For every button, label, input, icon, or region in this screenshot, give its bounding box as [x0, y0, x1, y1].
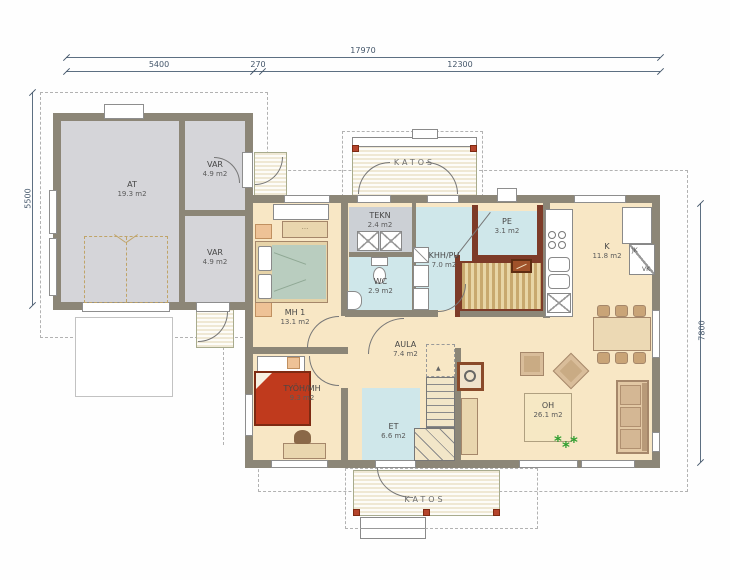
dimension-line-segments — [66, 71, 660, 72]
sofa-backrest — [642, 383, 647, 451]
door-opening — [357, 195, 391, 203]
dining-chair — [615, 352, 628, 364]
plant: * — [554, 436, 562, 446]
stairs-up-arrow: ▲ — [436, 365, 441, 372]
pe-wall — [537, 205, 543, 261]
dining-chair — [615, 305, 628, 317]
dimension-label-left-height: 5500 — [24, 179, 33, 219]
dresser: ··· — [282, 221, 328, 238]
toilet-tank — [371, 257, 388, 266]
room-label-wc: WC2.9 m2 — [353, 277, 408, 296]
stove-burner — [558, 241, 566, 249]
dining-chair — [633, 352, 646, 364]
room-label-mh1: MH 113.1 m2 — [265, 308, 325, 327]
dining-chair — [597, 305, 610, 317]
floor-plan-canvas: 17970 5400 270 12300 5500 7800 KATOS KAT… — [0, 0, 730, 580]
porch-post — [353, 509, 360, 516]
wall-segment — [341, 388, 348, 460]
sofa — [616, 380, 649, 454]
stairs-flight — [426, 377, 455, 428]
garage-door-centerline — [126, 237, 127, 302]
door-opening — [196, 302, 230, 312]
room-label-var-top: VAR4.9 m2 — [185, 160, 245, 179]
room-label-at: AT19.3 m2 — [102, 180, 162, 199]
porch-post — [352, 145, 359, 152]
desk-chair — [294, 430, 311, 444]
wall-segment — [345, 310, 438, 317]
dimension-label-gap: 270 — [243, 60, 273, 69]
hvac-unit — [380, 231, 402, 251]
stove-mark — [516, 264, 526, 270]
dining-chair — [633, 305, 646, 317]
dimension-tick — [29, 302, 36, 309]
nightstand — [255, 224, 272, 239]
window — [49, 238, 57, 296]
armchair-seat — [524, 356, 540, 372]
room-label-khh: KHH/PU7.0 m2 — [414, 251, 474, 270]
window — [284, 195, 330, 203]
armchair — [520, 352, 544, 376]
room-label-var-bottom: VAR4.9 m2 — [185, 248, 245, 267]
dining-table — [593, 317, 651, 351]
dimension-line-total — [66, 57, 660, 58]
stove-burner — [548, 241, 556, 249]
garage-door-opening — [82, 302, 170, 312]
flue-circle — [464, 370, 476, 382]
plant: * — [570, 437, 578, 447]
porch-post — [470, 145, 477, 152]
driveway — [75, 317, 173, 397]
tv-bench — [461, 398, 478, 455]
sauna-stove — [511, 259, 532, 273]
window — [652, 432, 660, 452]
chimney — [497, 188, 517, 202]
wardrobe — [273, 204, 329, 220]
porch-step-line — [360, 528, 426, 529]
dimension-label-total: 17970 — [338, 46, 388, 55]
kitchen-cabinet — [622, 207, 652, 244]
dimension-label-left-seg: 5400 — [134, 60, 184, 69]
wall-segment — [185, 210, 245, 216]
porch-post — [493, 509, 500, 516]
wall-segment — [253, 347, 348, 354]
dimension-tick — [697, 459, 704, 466]
sofa-cushion — [620, 429, 641, 449]
porch-top-step — [412, 129, 438, 139]
entry-door-opening — [375, 460, 416, 468]
window — [271, 460, 328, 468]
room-label-k: K11.8 m2 — [579, 242, 635, 261]
roof-vent — [104, 104, 144, 119]
room-label-tyoh: TYÖH/MH9.3 m2 — [267, 384, 337, 403]
plant: * — [562, 442, 570, 452]
stove-burner — [558, 231, 566, 239]
double-bed — [255, 241, 328, 303]
room-label-oh: OH26.1 m2 — [525, 401, 571, 420]
window — [574, 195, 626, 203]
room-label-aula: AULA7.4 m2 — [378, 340, 433, 359]
side-box — [287, 357, 300, 369]
window — [652, 310, 660, 358]
door-opening — [427, 195, 459, 203]
room-label-pe: PE3.1 m2 — [482, 217, 532, 236]
pillow — [258, 274, 272, 299]
utility-cabinet — [413, 288, 429, 310]
water-heater — [357, 231, 379, 251]
dimension-tick — [657, 54, 664, 61]
porch-post — [423, 509, 430, 516]
sofa-cushion — [620, 407, 641, 427]
window — [581, 460, 635, 468]
freezer-label: VK — [642, 266, 650, 273]
room-label-tekn: TEKN2.4 m2 — [352, 211, 408, 230]
window — [49, 190, 57, 234]
overhang-line — [223, 337, 224, 445]
dishwasher — [547, 293, 571, 313]
sink-basin — [548, 257, 570, 272]
room-label-et: ET6.6 m2 — [366, 422, 421, 441]
dimension-tick — [657, 68, 664, 75]
sink-basin — [548, 274, 570, 289]
window — [519, 460, 578, 468]
sofa-cushion — [620, 385, 641, 405]
desk — [283, 443, 326, 459]
bed-mattress — [272, 245, 326, 299]
dining-chair — [597, 352, 610, 364]
accent-chair-seat — [560, 360, 583, 383]
window — [245, 394, 253, 436]
dimension-label-right-height: 7800 — [698, 311, 707, 351]
porch-bottom-label: KATOS — [385, 495, 465, 504]
fireplace — [457, 362, 484, 391]
dimension-label-right-seg: 12300 — [432, 60, 488, 69]
pillow — [258, 246, 272, 271]
stove-burner — [548, 231, 556, 239]
wall-segment — [455, 311, 551, 317]
